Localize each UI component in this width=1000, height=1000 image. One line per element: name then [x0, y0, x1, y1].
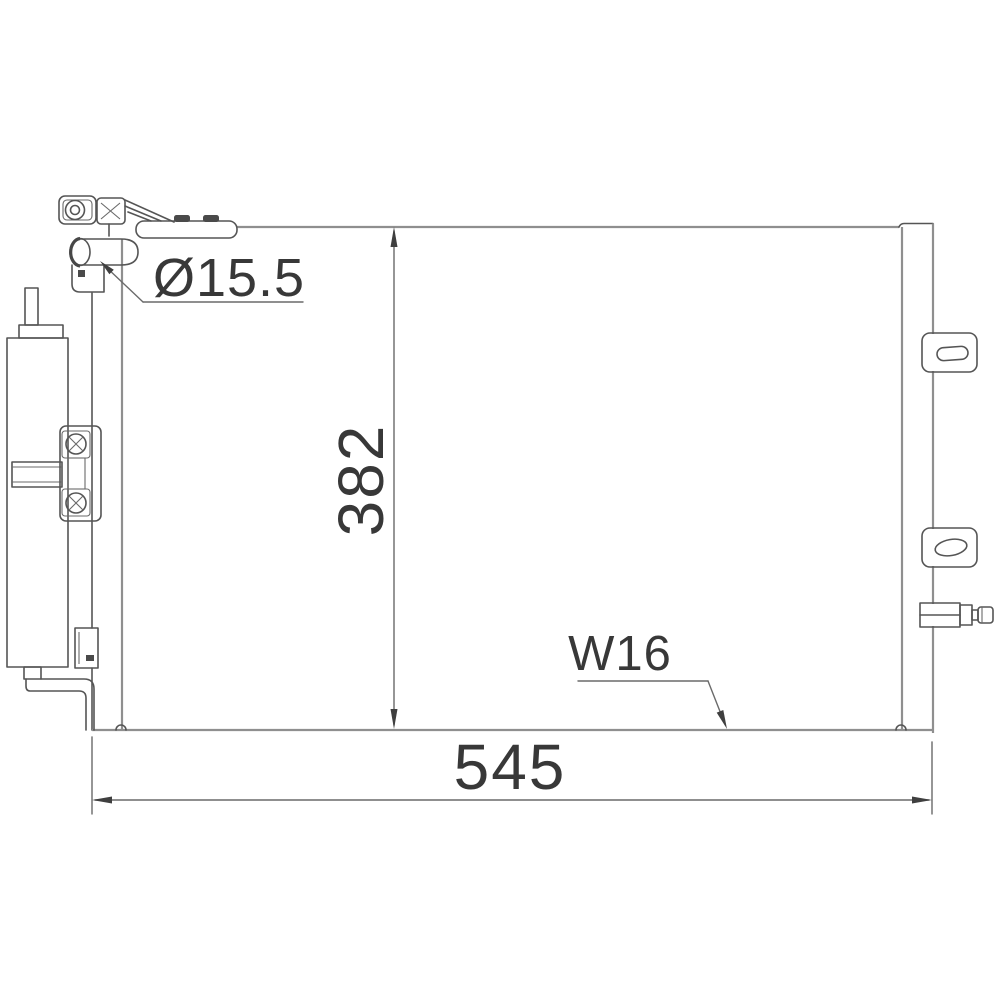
right-bracket-upper [922, 333, 977, 372]
right-port-fitting [920, 603, 993, 627]
drier-top-pipe [25, 288, 38, 325]
leader-arrow-icon [717, 710, 727, 729]
height-dimension-text: 382 [325, 424, 397, 537]
fitting-nipple [978, 607, 993, 623]
mount-tab-2 [203, 215, 219, 222]
arrow-right-icon [912, 797, 932, 804]
width-dimension-text: 545 [454, 731, 567, 803]
drier-mounting-bracket [12, 426, 101, 521]
bracket-slot-upper [937, 346, 969, 361]
height-dimension: 382 [325, 227, 398, 729]
receiver-drier [7, 288, 94, 730]
mount-tab-1 [174, 215, 190, 222]
arrow-up-icon [391, 227, 398, 247]
arrow-down-icon [391, 709, 398, 729]
top-mounting-plate [136, 221, 237, 238]
drier-cap [19, 325, 63, 338]
condenser-technical-drawing: 382 545 Ø15.5 W16 [0, 0, 1000, 1000]
drier-body [7, 338, 68, 667]
arrow-left-icon [92, 797, 112, 804]
bracket-slot-lower [934, 537, 968, 558]
diameter-callout: Ø15.5 [100, 248, 305, 308]
bracket-x-brace [101, 203, 120, 219]
bracket-eyelet-hole [66, 201, 85, 220]
technical-drawing-page: 382 545 Ø15.5 W16 [0, 0, 1000, 1000]
width-dimension: 545 [92, 731, 932, 814]
right-bracket-lower [922, 528, 977, 567]
top-left-mounting-bracket [59, 196, 237, 238]
diameter-callout-text: Ø15.5 [153, 248, 305, 308]
drier-connector-block [75, 628, 98, 668]
pipe-thread-callout-text: W16 [568, 627, 672, 681]
pipe-thread-callout: W16 [568, 627, 727, 729]
bracket-tab [12, 462, 62, 487]
